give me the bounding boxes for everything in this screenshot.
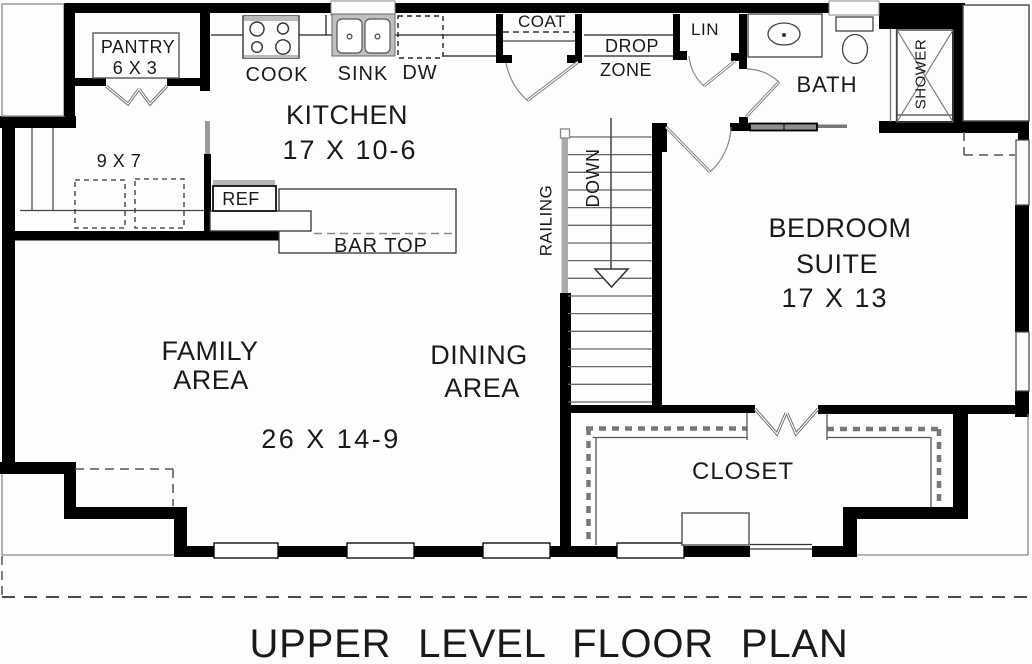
svg-text:DROP: DROP [605, 36, 659, 56]
svg-text:CLOSET: CLOSET [692, 458, 794, 485]
svg-text:BAR TOP: BAR TOP [334, 235, 428, 257]
svg-text:AREA: AREA [444, 373, 520, 403]
svg-text:9 X 7: 9 X 7 [97, 151, 142, 171]
svg-text:DINING: DINING [430, 340, 528, 370]
svg-text:UPPER LEVEL FLOOR PLAN: UPPER LEVEL FLOOR PLAN [249, 622, 848, 664]
svg-text:PANTRY: PANTRY [101, 37, 175, 57]
svg-text:KITCHEN: KITCHEN [286, 100, 408, 130]
svg-text:ZONE: ZONE [600, 60, 652, 80]
svg-text:DW: DW [402, 62, 437, 84]
svg-text:DOWN: DOWN [583, 149, 603, 208]
svg-text:SINK: SINK [338, 63, 389, 85]
svg-text:COAT: COAT [518, 12, 566, 31]
svg-text:SHOWER: SHOWER [913, 39, 930, 110]
svg-text:COOK: COOK [246, 64, 309, 86]
svg-text:SUITE: SUITE [796, 249, 878, 279]
svg-text:AREA: AREA [173, 365, 249, 395]
svg-text:LIN: LIN [691, 20, 719, 39]
svg-text:17 X 10-6: 17 X 10-6 [282, 135, 417, 165]
svg-text:REF: REF [222, 189, 260, 209]
svg-text:BEDROOM: BEDROOM [768, 213, 911, 243]
svg-text:17 X 13: 17 X 13 [781, 283, 888, 313]
svg-text:6 X 3: 6 X 3 [113, 58, 158, 78]
svg-text:FAMILY: FAMILY [161, 336, 258, 366]
svg-text:26 X 14-9: 26 X 14-9 [261, 424, 401, 454]
svg-text:RAILING: RAILING [537, 185, 556, 257]
svg-text:BATH: BATH [796, 72, 857, 97]
